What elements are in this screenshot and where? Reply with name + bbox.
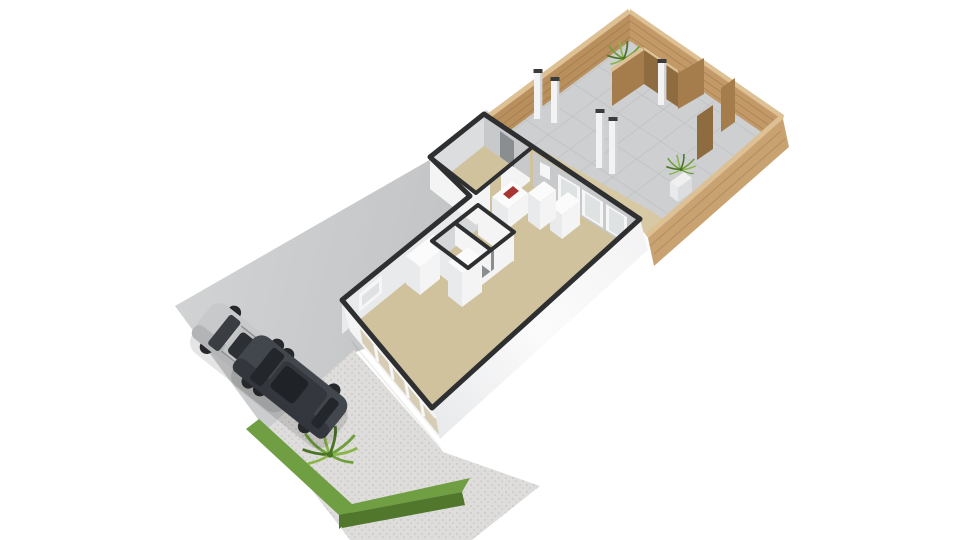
post-cap [609,117,618,121]
post-side [540,72,542,119]
post [658,59,667,105]
post-side [664,62,666,105]
floorplan-canvas [0,0,960,540]
post-cap [534,69,543,73]
post-side [602,112,604,168]
post [596,109,605,168]
post-face [609,120,615,174]
post-face [658,62,664,105]
post-face [534,72,540,119]
post [551,77,560,123]
post [534,69,543,119]
post-side [615,120,617,174]
post-cap [596,109,605,113]
post [609,117,618,174]
post-side [557,80,559,123]
post-cap [658,59,667,63]
post-face [551,80,557,123]
floorplan-3d-render [0,0,960,540]
post-cap [551,77,560,81]
post-face [596,112,602,168]
